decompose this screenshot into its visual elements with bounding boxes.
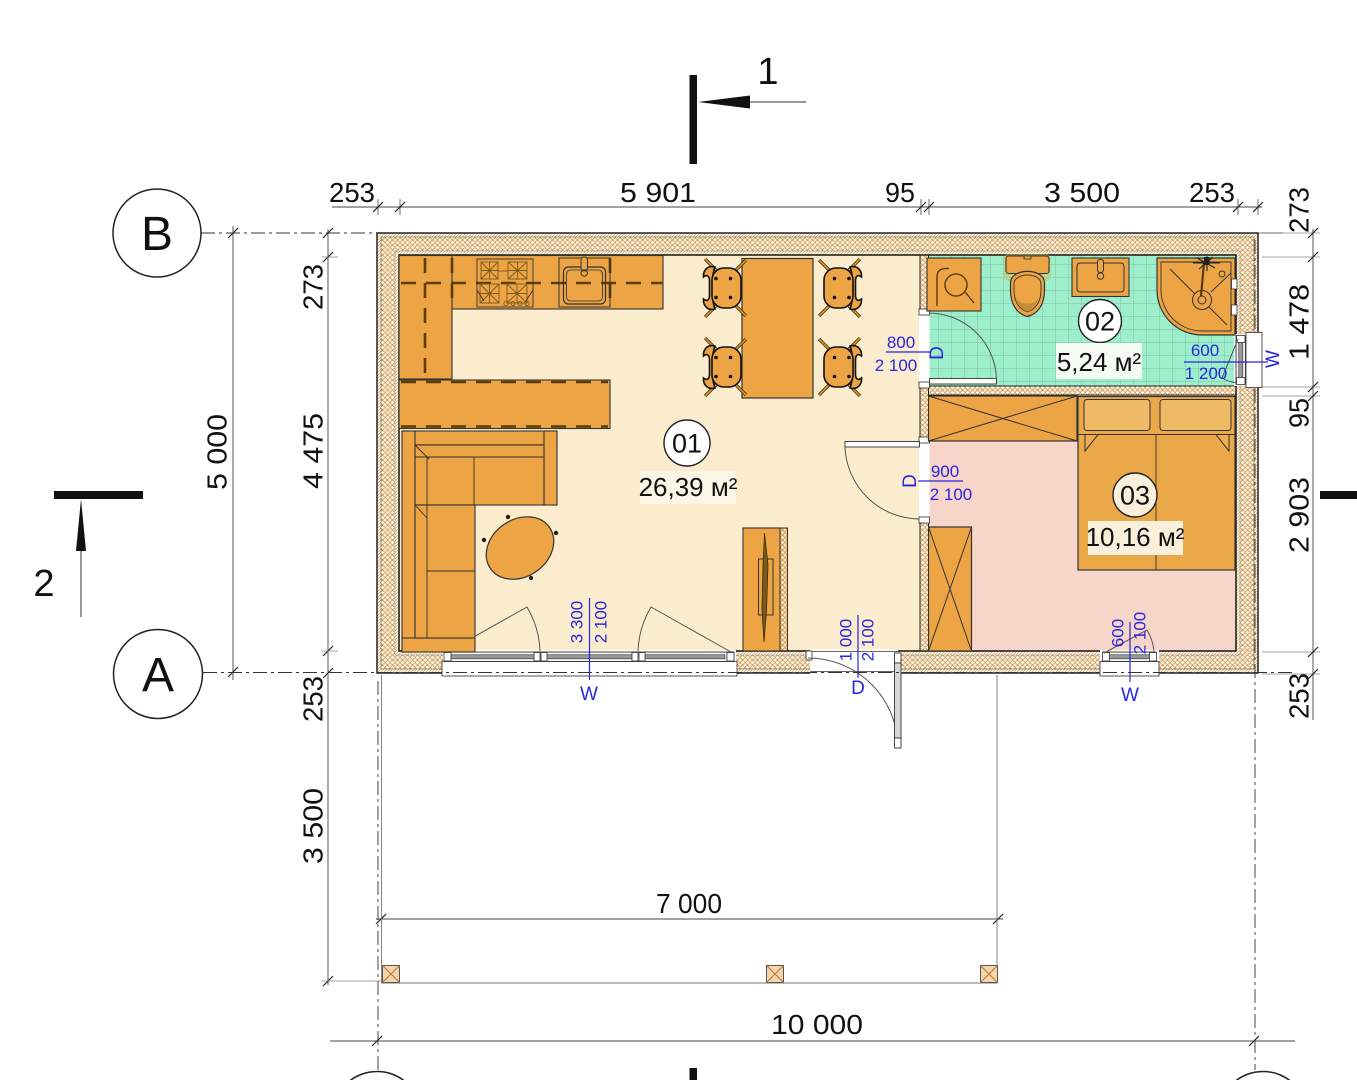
svg-text:1 000: 1 000 bbox=[836, 619, 855, 662]
svg-text:3 300: 3 300 bbox=[567, 601, 586, 644]
svg-text:600: 600 bbox=[1191, 341, 1219, 360]
svg-text:D: D bbox=[900, 474, 921, 488]
svg-text:1 478: 1 478 bbox=[1283, 284, 1314, 360]
svg-text:01: 01 bbox=[672, 429, 702, 459]
svg-text:2 100: 2 100 bbox=[930, 485, 973, 504]
svg-text:03: 03 bbox=[1120, 481, 1150, 511]
svg-text:02: 02 bbox=[1085, 307, 1115, 337]
svg-text:2 100: 2 100 bbox=[1130, 612, 1149, 655]
svg-text:900: 900 bbox=[931, 462, 959, 481]
svg-text:W: W bbox=[1263, 350, 1284, 368]
svg-text:1 200: 1 200 bbox=[1185, 364, 1228, 383]
svg-text:253: 253 bbox=[329, 177, 375, 208]
svg-text:800: 800 bbox=[887, 333, 915, 352]
svg-text:26,39 м²: 26,39 м² bbox=[639, 472, 738, 502]
svg-text:273: 273 bbox=[297, 264, 328, 310]
svg-text:600: 600 bbox=[1108, 619, 1127, 647]
svg-text:273: 273 bbox=[1283, 187, 1314, 233]
svg-text:253: 253 bbox=[297, 676, 328, 722]
svg-text:253: 253 bbox=[1189, 177, 1235, 208]
svg-text:1: 1 bbox=[757, 51, 778, 93]
svg-text:5,24 м²: 5,24 м² bbox=[1057, 347, 1142, 377]
svg-text:5 901: 5 901 bbox=[620, 177, 696, 208]
svg-text:W: W bbox=[580, 684, 598, 705]
svg-text:7 000: 7 000 bbox=[656, 888, 722, 919]
svg-text:W: W bbox=[1121, 685, 1139, 706]
svg-text:2 100: 2 100 bbox=[875, 356, 918, 375]
svg-text:2: 2 bbox=[33, 563, 54, 605]
svg-text:4 475: 4 475 bbox=[297, 413, 328, 489]
svg-text:95: 95 bbox=[1283, 398, 1314, 428]
svg-text:95: 95 bbox=[885, 177, 915, 208]
svg-text:2 100: 2 100 bbox=[858, 619, 877, 662]
svg-text:D: D bbox=[927, 346, 948, 360]
svg-text:10 000: 10 000 bbox=[771, 1009, 863, 1040]
svg-text:2 100: 2 100 bbox=[591, 601, 610, 644]
svg-text:5 000: 5 000 bbox=[201, 414, 232, 490]
svg-text:10,16 м²: 10,16 м² bbox=[1086, 522, 1185, 552]
svg-text:A: A bbox=[142, 649, 174, 702]
svg-text:2 903: 2 903 bbox=[1283, 477, 1314, 553]
svg-text:B: B bbox=[141, 208, 173, 261]
svg-text:3 500: 3 500 bbox=[297, 788, 328, 864]
svg-text:253: 253 bbox=[1283, 673, 1314, 719]
svg-text:3 500: 3 500 bbox=[1044, 177, 1120, 208]
svg-text:D: D bbox=[851, 678, 865, 699]
